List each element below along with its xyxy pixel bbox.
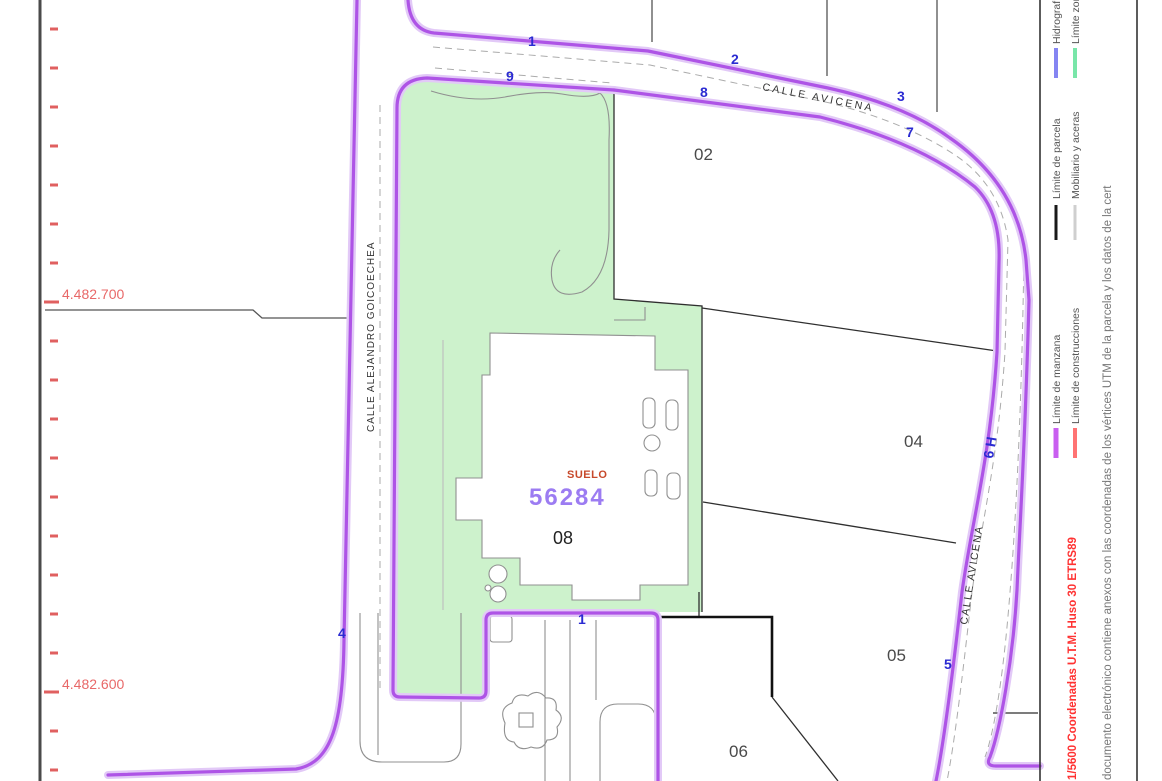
suelo-label: SUELO [567,469,607,481]
parcel-limit-thick [658,617,772,697]
disclaimer-text: documento electrónico contiene anexos co… [1102,185,1114,780]
utm-ticks [44,29,59,770]
vertex-4: 4 [338,625,346,641]
parcel-04-label: 04 [904,432,923,451]
utm-label-north-upper: 4.482.700 [62,286,124,302]
scale-coordinates-text: 1/5600 Coordenadas U.T.M. Huso 30 ETRS89 [1067,537,1079,780]
legend-label-mobiliario: Mobiliario y aceras [1070,111,1082,199]
street-left-label: CALLE ALEJANDRO GOICOECHEA [366,242,377,433]
legend-label-hidrografia: Hidrografía [1051,0,1063,44]
vertex-8: 8 [700,84,708,100]
legend: Hidrografía Límite zona verde Límite de … [1051,0,1082,458]
cadastral-map: 4.482.700 4.482.600 CALLE ALEJANDRO GOIC… [0,0,1162,781]
utm-label-north-lower: 4.482.600 [62,676,124,692]
vertex-6h: 6 H [980,435,999,459]
vertex-9: 9 [506,68,514,84]
legend-label-zona-verde: Límite zona verde [1070,0,1082,44]
vertex-1-bottom: 1 [578,611,586,627]
cadastral-number-label: 56284 [529,484,606,511]
neighbor-parcel-labels: 02 04 05 06 [694,145,923,761]
vertex-1-top: 1 [528,33,536,49]
legend-label-construcciones: Límite de construcciones [1070,308,1082,424]
vertex-3: 3 [897,88,905,104]
legend-label-manzana: Límite de manzana [1051,335,1063,424]
vertex-5: 5 [944,656,952,672]
parcel-06-label: 06 [729,742,748,761]
parcel-number-label: 08 [553,528,573,548]
parcel-05-label: 05 [887,646,906,665]
parcel-02-label: 02 [694,145,713,164]
legend-label-parcela: Límite de parcela [1051,118,1063,199]
vertex-2: 2 [731,51,739,67]
vertex-7: 7 [906,124,914,140]
